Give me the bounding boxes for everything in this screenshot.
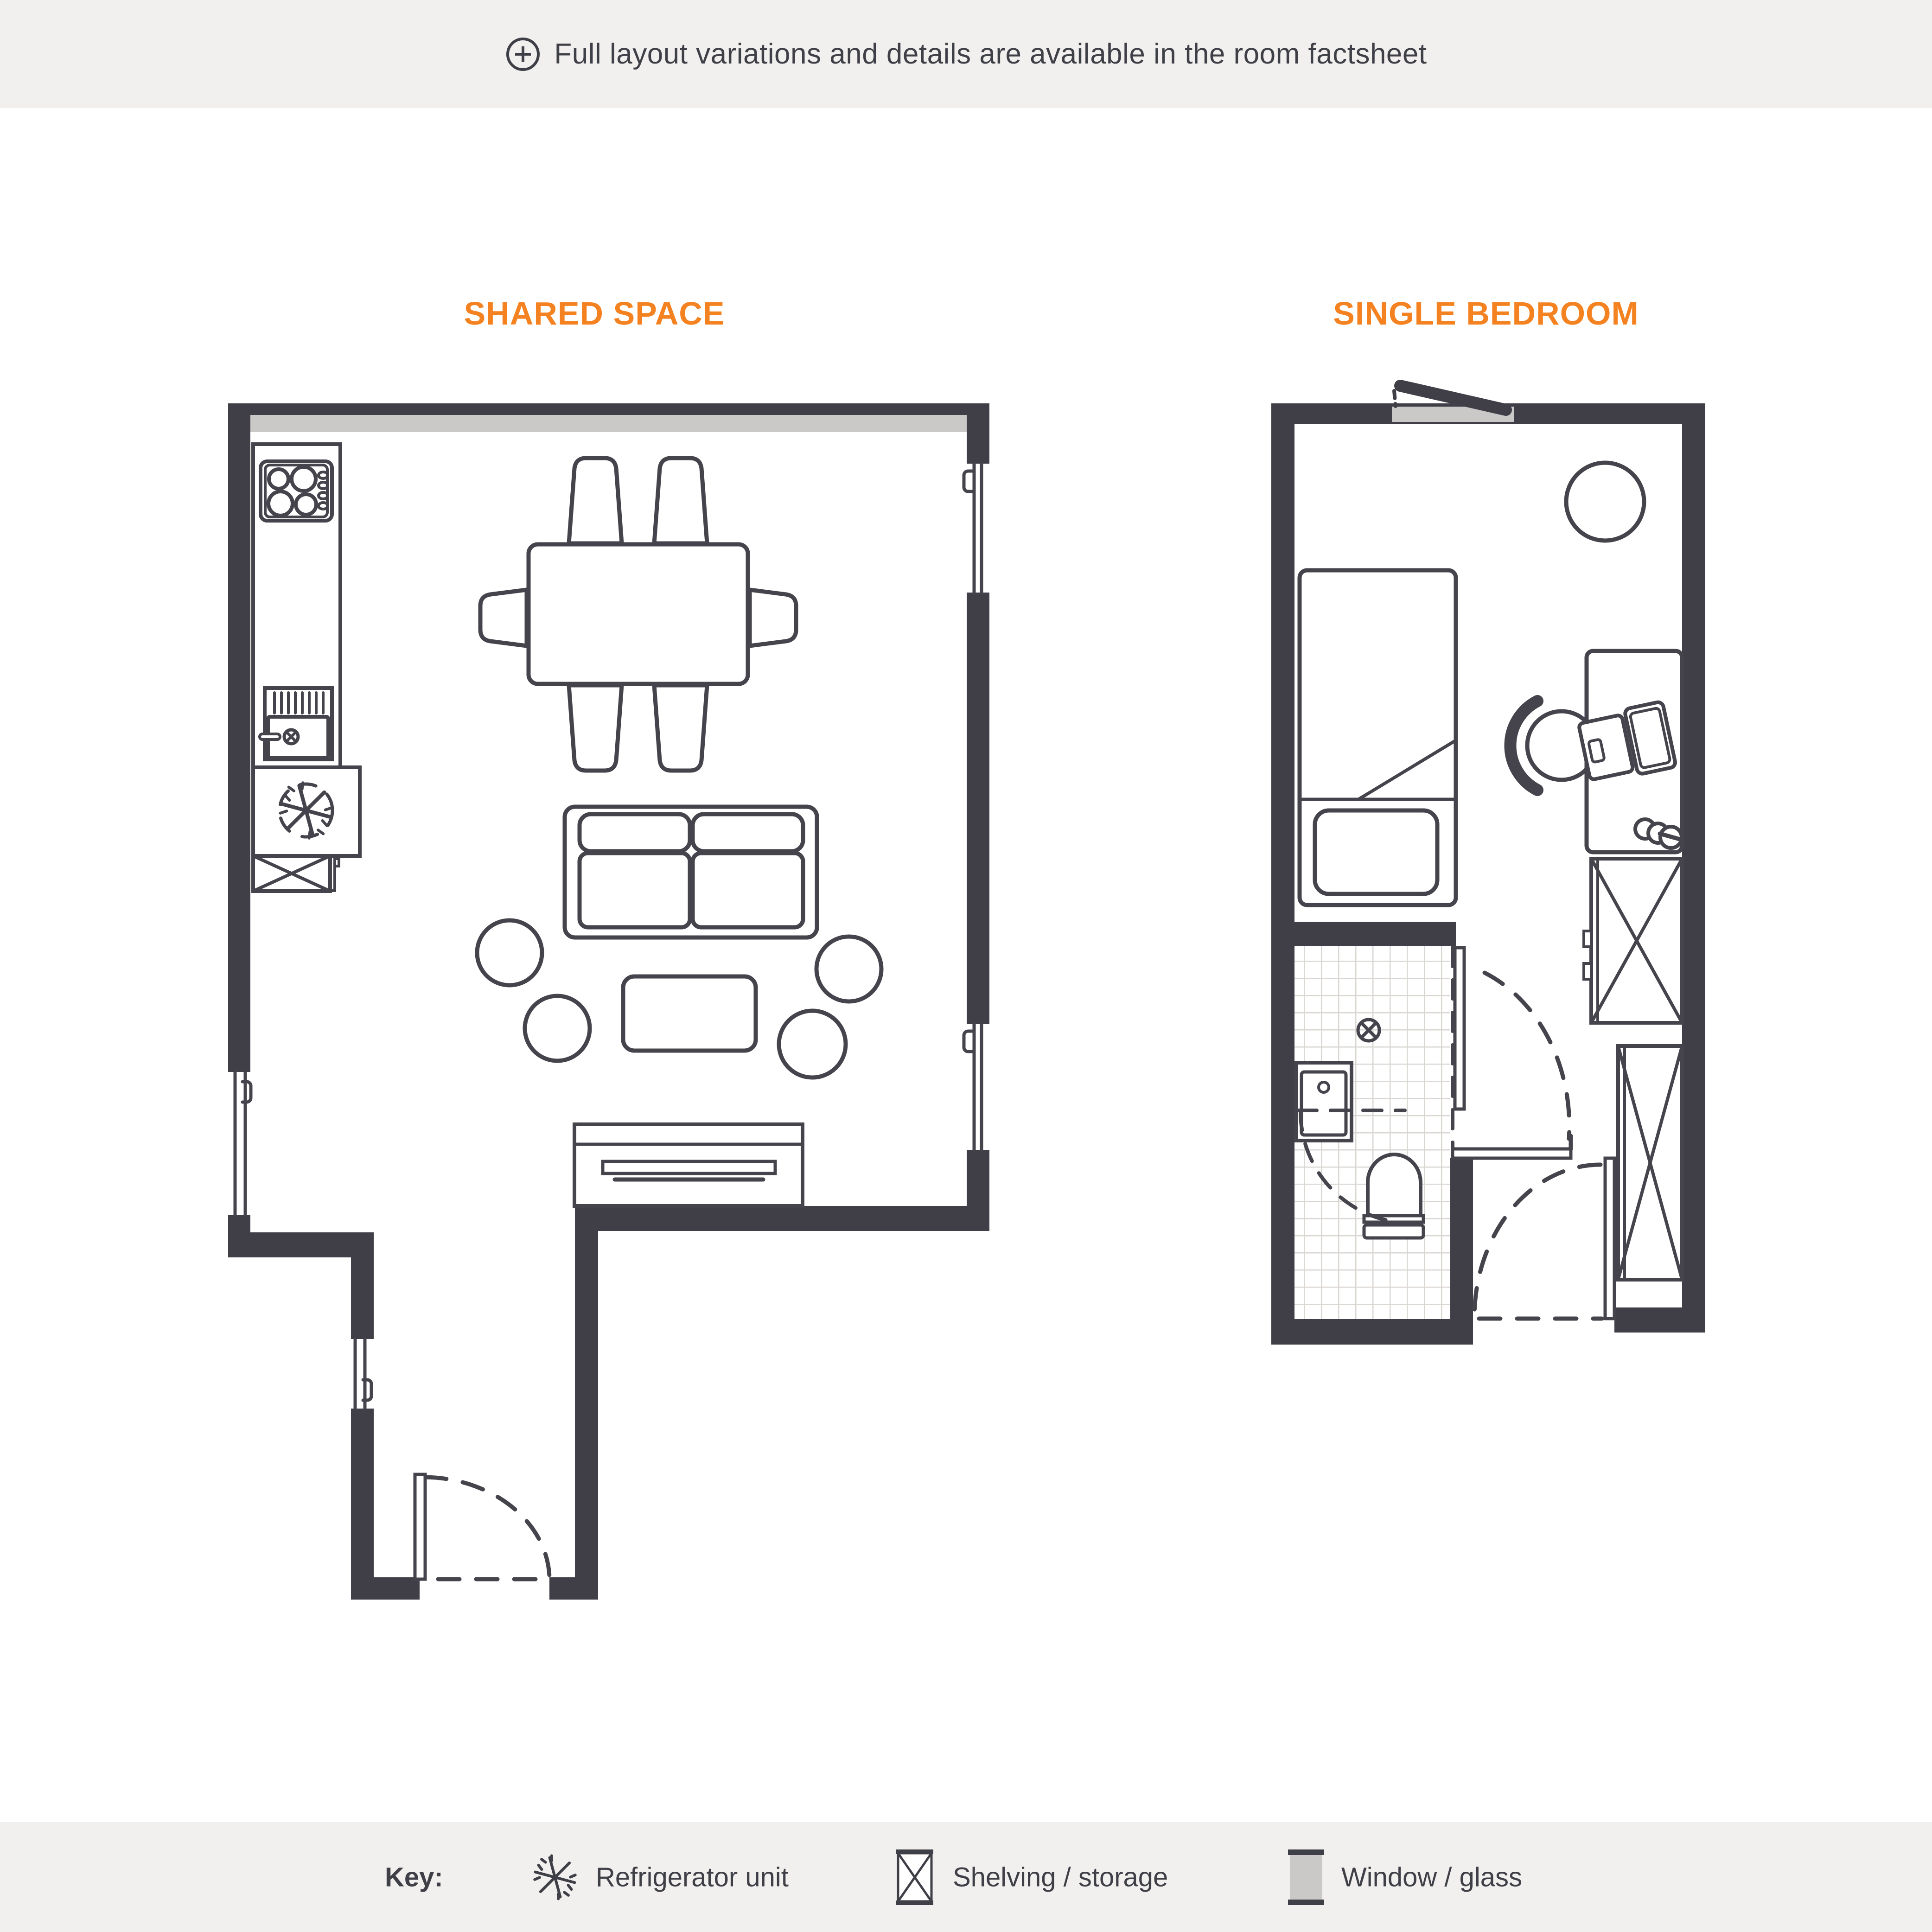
pillow [1315, 810, 1437, 894]
dining-set [480, 458, 796, 771]
door-leaf [415, 1474, 425, 1579]
legend-bar: Key: Refrigerator unit Shelving / storag… [0, 1822, 1932, 1932]
bed [1300, 570, 1456, 905]
window-glass-strip [250, 415, 967, 432]
window-glass-icon [1288, 1849, 1324, 1905]
entry-door [415, 1474, 549, 1579]
stool [1566, 463, 1644, 541]
single-bedroom-title: SINGLE BEDROOM [1333, 295, 1639, 332]
legend-refrigerator-label: Refrigerator unit [596, 1862, 789, 1893]
door-leaf [1605, 1158, 1614, 1319]
sofa [565, 807, 817, 937]
stool [779, 1011, 846, 1078]
tv-unit [574, 1124, 803, 1206]
handle-icon [1584, 963, 1591, 979]
shared-space-title: SHARED SPACE [464, 295, 725, 332]
shared-space-plan [228, 403, 989, 1600]
dining-chair [480, 590, 527, 646]
dining-chair [569, 458, 622, 543]
tv-screen [603, 1161, 775, 1173]
coffee-table [623, 976, 756, 1051]
dining-chair [569, 685, 622, 771]
door-leaf [1453, 1149, 1571, 1158]
stool [525, 996, 590, 1061]
kitchen-shelving [253, 856, 339, 891]
snowflake-icon [531, 1852, 579, 1903]
dining-chair [750, 590, 796, 646]
floorplan-stage: SHARED SPACE SINGLE BEDROOM [0, 0, 1932, 1932]
legend-shelving-label: Shelving / storage [953, 1862, 1168, 1893]
refrigerator [253, 767, 360, 856]
desk [1577, 651, 1683, 852]
door-leaf [1455, 948, 1464, 1109]
single-bedroom-plan [1271, 386, 1705, 1345]
bedroom-entry-door [1474, 1158, 1614, 1319]
stool [816, 937, 881, 1001]
wall-corner [967, 403, 989, 464]
washbasin [1296, 1063, 1352, 1141]
wardrobe-shelving [1584, 859, 1682, 1280]
legend-key-label: Key: [385, 1862, 443, 1893]
legend-window-label: Window / glass [1341, 1862, 1522, 1893]
handle-icon [1584, 931, 1591, 947]
bathroom [1294, 946, 1464, 1319]
dining-table [529, 544, 748, 684]
crossed-box-icon [896, 1849, 933, 1905]
toilet [1364, 1154, 1423, 1238]
stool [477, 920, 542, 985]
bedroom-inner-door [1453, 973, 1571, 1158]
dining-chair [654, 685, 707, 771]
dining-chair [654, 458, 707, 543]
